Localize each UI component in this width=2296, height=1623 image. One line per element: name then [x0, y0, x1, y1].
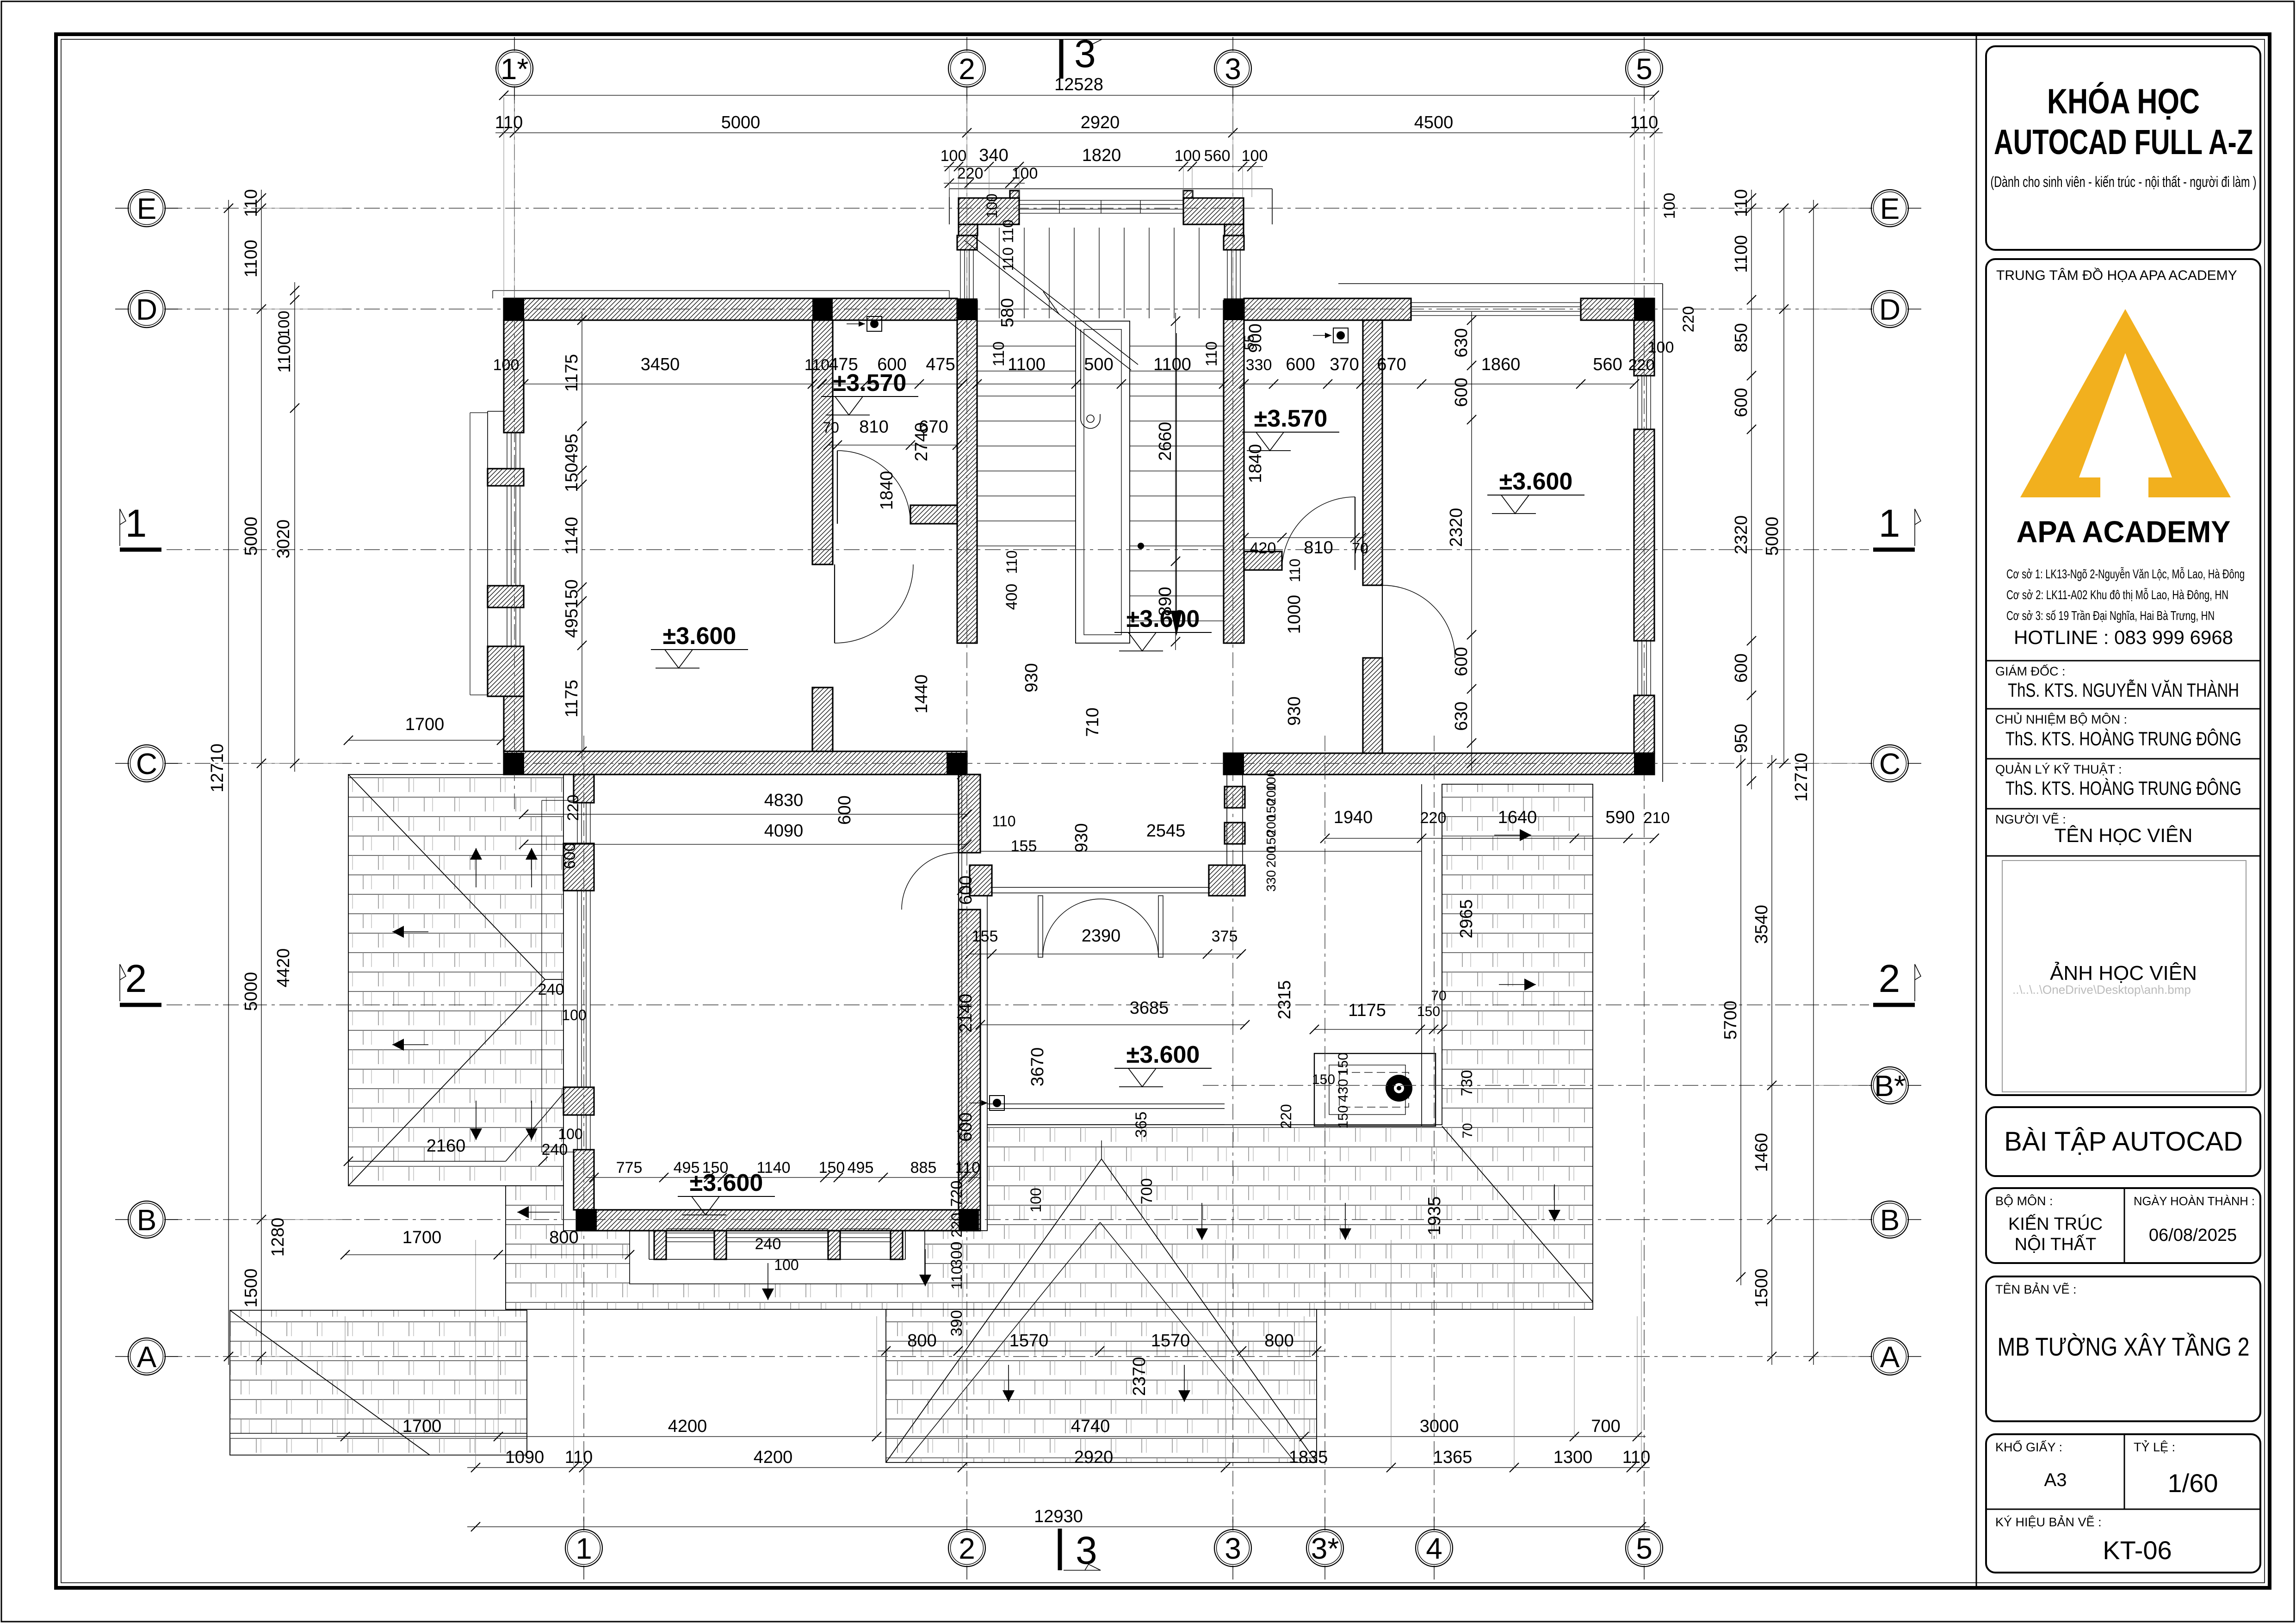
- svg-text:GIÁM ĐỐC :: GIÁM ĐỐC :: [1995, 663, 2066, 678]
- svg-text:110: 110: [1630, 113, 1659, 132]
- svg-text:810: 810: [859, 417, 888, 437]
- svg-text:1280: 1280: [268, 1218, 288, 1257]
- svg-text:600: 600: [1732, 653, 1751, 682]
- svg-text:150: 150: [562, 579, 582, 608]
- svg-text:4830: 4830: [764, 791, 804, 810]
- svg-text:390: 390: [948, 1310, 965, 1337]
- svg-text:2140: 2140: [956, 994, 976, 1033]
- svg-text:560: 560: [1204, 147, 1231, 165]
- svg-text:885: 885: [910, 1159, 937, 1177]
- svg-text:2370: 2370: [1130, 1357, 1149, 1396]
- svg-text:1940: 1940: [1334, 808, 1373, 827]
- svg-text:475: 475: [926, 355, 955, 374]
- svg-text:2: 2: [959, 52, 975, 86]
- svg-text:1100: 1100: [241, 240, 261, 278]
- svg-text:12930: 12930: [1034, 1507, 1083, 1526]
- svg-text:1090: 1090: [505, 1448, 545, 1467]
- svg-text:BỘ MÔN :: BỘ MÔN :: [1995, 1194, 2053, 1208]
- svg-text:800: 800: [907, 1331, 936, 1350]
- svg-text:1440: 1440: [912, 675, 931, 714]
- svg-text:B: B: [1880, 1203, 1900, 1237]
- svg-text:1175: 1175: [1348, 1001, 1386, 1020]
- svg-text:(Dành cho sinh viên - kiến tr: (Dành cho sinh viên - kiến trúc - nội th…: [1991, 173, 2257, 190]
- svg-text:1300: 1300: [1553, 1448, 1593, 1467]
- svg-text:D: D: [1879, 293, 1900, 326]
- svg-text:220: 220: [1420, 809, 1447, 827]
- svg-text:110: 110: [1000, 219, 1016, 243]
- svg-text:365: 365: [1133, 1112, 1150, 1138]
- svg-text:5000: 5000: [1763, 517, 1782, 556]
- svg-text:1100: 1100: [1153, 355, 1191, 374]
- svg-text:1*: 1*: [501, 52, 529, 86]
- svg-text:600: 600: [1452, 647, 1471, 676]
- svg-text:375: 375: [1212, 928, 1238, 945]
- svg-text:3*: 3*: [1311, 1532, 1339, 1565]
- svg-text:..\..\..\OneDrive\Desktop\anh.: ..\..\..\OneDrive\Desktop\anh.bmp: [2012, 983, 2191, 997]
- svg-text:KHÓA HỌC: KHÓA HỌC: [2047, 82, 2200, 121]
- svg-text:850: 850: [1732, 323, 1751, 352]
- svg-text:5000: 5000: [241, 517, 261, 556]
- svg-text:KT-06: KT-06: [2103, 1536, 2172, 1565]
- svg-text:1835: 1835: [1289, 1448, 1328, 1467]
- svg-text:4200: 4200: [754, 1448, 793, 1467]
- svg-text:700: 700: [1138, 1178, 1156, 1205]
- svg-text:300: 300: [948, 1242, 965, 1268]
- svg-text:100: 100: [1661, 193, 1678, 219]
- svg-text:B: B: [137, 1203, 157, 1237]
- svg-text:KHỔ GIẤY :: KHỔ GIẤY :: [1995, 1440, 2062, 1454]
- svg-text:ThS. KTS. HOÀNG TRUNG ĐÔNG: ThS. KTS. HOÀNG TRUNG ĐÔNG: [2005, 777, 2241, 799]
- svg-text:3000: 3000: [1420, 1417, 1459, 1436]
- svg-text:4090: 4090: [764, 821, 804, 841]
- svg-text:330: 330: [1246, 356, 1272, 374]
- svg-text:Cơ sở 1: LK13-Ngõ 2-Nguyễn Văn: Cơ sở 1: LK13-Ngõ 2-Nguyễn Văn Lộc, Mỗ L…: [2006, 567, 2245, 581]
- svg-text:2740: 2740: [912, 422, 931, 462]
- svg-text:420: 420: [1250, 539, 1276, 557]
- svg-text:110: 110: [1622, 1448, 1651, 1467]
- svg-text:930: 930: [1285, 696, 1304, 725]
- svg-text:100: 100: [774, 1257, 798, 1273]
- svg-text:800: 800: [1264, 1331, 1293, 1350]
- svg-text:495: 495: [848, 1159, 874, 1177]
- svg-text:D: D: [136, 293, 157, 326]
- svg-text:BÀI TẬP AUTOCAD: BÀI TẬP AUTOCAD: [2004, 1127, 2243, 1157]
- svg-text:2320: 2320: [1732, 515, 1751, 555]
- svg-text:70: 70: [823, 419, 839, 436]
- svg-text:4200: 4200: [668, 1417, 707, 1436]
- svg-text:150: 150: [819, 1159, 845, 1177]
- svg-text:240: 240: [542, 1141, 568, 1158]
- svg-text:2: 2: [1879, 957, 1900, 1000]
- svg-text:600: 600: [877, 355, 906, 374]
- svg-text:220: 220: [564, 795, 582, 821]
- svg-text:3: 3: [1225, 52, 1241, 86]
- svg-text:1860: 1860: [1481, 355, 1521, 374]
- svg-text:C: C: [1879, 747, 1900, 781]
- svg-text:TÊN BẢN VẼ :: TÊN BẢN VẼ :: [1995, 1282, 2077, 1296]
- svg-text:720: 720: [948, 1181, 965, 1207]
- svg-text:ThS. KTS. HOÀNG TRUNG ĐÔNG: ThS. KTS. HOÀNG TRUNG ĐÔNG: [2005, 728, 2241, 750]
- svg-text:5: 5: [1636, 52, 1652, 86]
- svg-text:110: 110: [805, 356, 829, 374]
- svg-text:12710: 12710: [208, 743, 227, 793]
- svg-text:3: 3: [1225, 1532, 1241, 1565]
- svg-text:495: 495: [562, 608, 582, 638]
- svg-text:150: 150: [1312, 1072, 1335, 1087]
- svg-text:100: 100: [1027, 1188, 1044, 1212]
- svg-text:1100: 1100: [1008, 355, 1046, 374]
- svg-text:2390: 2390: [1082, 926, 1121, 946]
- svg-text:1365: 1365: [1433, 1448, 1473, 1467]
- svg-text:110: 110: [1003, 550, 1020, 574]
- svg-text:2920: 2920: [1074, 1448, 1114, 1467]
- svg-text:150: 150: [1336, 1053, 1351, 1076]
- svg-text:150: 150: [1417, 1004, 1440, 1019]
- svg-text:200: 200: [1264, 846, 1278, 868]
- svg-text:110: 110: [955, 1159, 980, 1177]
- svg-text:1100: 1100: [1732, 235, 1751, 273]
- svg-text:1935: 1935: [1425, 1196, 1444, 1236]
- svg-text:150: 150: [1336, 1105, 1351, 1128]
- svg-text:100: 100: [493, 356, 520, 374]
- svg-text:240: 240: [538, 981, 564, 998]
- svg-text:1840: 1840: [877, 471, 897, 510]
- svg-text:1140: 1140: [562, 517, 582, 555]
- svg-text:12528: 12528: [1054, 75, 1103, 94]
- svg-text:TÊN HỌC VIÊN: TÊN HỌC VIÊN: [2055, 824, 2193, 846]
- svg-text:100: 100: [984, 193, 1000, 218]
- svg-text:110: 110: [1203, 341, 1220, 366]
- svg-text:3685: 3685: [1130, 998, 1169, 1018]
- svg-text:100: 100: [562, 1007, 586, 1023]
- svg-text:110: 110: [241, 189, 261, 217]
- svg-text:220: 220: [1680, 306, 1697, 333]
- svg-text:4740: 4740: [1071, 1417, 1110, 1436]
- svg-text:700: 700: [1591, 1417, 1620, 1436]
- svg-text:2660: 2660: [1156, 422, 1175, 461]
- svg-text:3020: 3020: [274, 520, 293, 559]
- svg-text:1640: 1640: [1498, 808, 1537, 827]
- svg-text:100: 100: [1648, 339, 1674, 356]
- svg-text:110: 110: [1732, 189, 1751, 217]
- svg-text:2320: 2320: [1447, 508, 1466, 547]
- svg-text:5000: 5000: [721, 113, 761, 132]
- svg-text:Cơ sở 3: số 19 Trần Đại Nghĩa,: Cơ sở 3: số 19 Trần Đại Nghĩa, Hai Bà Tr…: [2006, 608, 2215, 623]
- svg-text:100: 100: [558, 1126, 582, 1142]
- svg-text:100: 100: [275, 311, 293, 337]
- svg-text:2: 2: [125, 957, 147, 1000]
- svg-text:12710: 12710: [1792, 753, 1811, 802]
- svg-text:1840: 1840: [1246, 444, 1265, 483]
- svg-text:Cơ sở 2: LK11-A02 Khu đô thị M: Cơ sở 2: LK11-A02 Khu đô thị Mỗ Lao, Hà …: [2006, 588, 2228, 602]
- svg-text:1700: 1700: [402, 1417, 442, 1436]
- svg-text:930: 930: [1022, 663, 1041, 692]
- svg-text:NGÀY HOÀN THÀNH :: NGÀY HOÀN THÀNH :: [2134, 1194, 2255, 1208]
- svg-text:950: 950: [1732, 724, 1751, 753]
- svg-text:1: 1: [1879, 502, 1900, 545]
- svg-text:560: 560: [1593, 355, 1622, 374]
- svg-text:1570: 1570: [1151, 1331, 1190, 1350]
- svg-text:3: 3: [1076, 1529, 1097, 1572]
- svg-text:TỶ LỆ :: TỶ LỆ :: [2134, 1439, 2175, 1454]
- svg-text:HOTLINE : 083 999 6968: HOTLINE : 083 999 6968: [2014, 626, 2233, 648]
- svg-text:150: 150: [702, 1159, 729, 1177]
- svg-text:2160: 2160: [427, 1136, 466, 1156]
- svg-text:370: 370: [1330, 355, 1359, 374]
- svg-text:600: 600: [561, 843, 579, 869]
- svg-text:06/08/2025: 06/08/2025: [2149, 1226, 2237, 1245]
- svg-text:630: 630: [1452, 701, 1471, 731]
- svg-text:590: 590: [1605, 808, 1634, 827]
- svg-text:2920: 2920: [1081, 113, 1120, 132]
- svg-text:600: 600: [956, 1112, 976, 1141]
- svg-text:1175: 1175: [562, 680, 582, 718]
- svg-text:3540: 3540: [1752, 905, 1771, 944]
- svg-text:400: 400: [1003, 584, 1021, 610]
- svg-text:1: 1: [125, 502, 147, 545]
- svg-text:A: A: [137, 1340, 157, 1374]
- svg-text:1460: 1460: [1752, 1133, 1771, 1172]
- svg-text:600: 600: [835, 795, 854, 824]
- svg-text:155: 155: [972, 928, 998, 945]
- svg-text:MB TƯỜNG XÂY TẦNG 2: MB TƯỜNG XÂY TẦNG 2: [1998, 1332, 2250, 1361]
- svg-text:4500: 4500: [1414, 113, 1454, 132]
- svg-text:4: 4: [1426, 1532, 1442, 1565]
- svg-text:±3.600: ±3.600: [663, 623, 736, 650]
- svg-text:110: 110: [1287, 558, 1303, 582]
- svg-text:475: 475: [829, 355, 858, 374]
- svg-text:155: 155: [1011, 837, 1037, 855]
- svg-text:5700: 5700: [1721, 1001, 1740, 1040]
- svg-text:430: 430: [1336, 1079, 1351, 1102]
- svg-text:APA ACADEMY: APA ACADEMY: [2017, 514, 2231, 549]
- svg-text:220: 220: [1278, 1104, 1294, 1128]
- svg-text:110: 110: [990, 341, 1008, 366]
- svg-text:900: 900: [1246, 323, 1265, 353]
- svg-text:B*: B*: [1874, 1069, 1906, 1103]
- svg-text:AUTOCAD FULL A-Z: AUTOCAD FULL A-Z: [1994, 123, 2253, 162]
- svg-text:CHỦ NHIỆM BỘ MÔN :: CHỦ NHIỆM BỘ MÔN :: [1995, 712, 2127, 726]
- svg-text:710: 710: [1083, 707, 1102, 737]
- svg-text:2315: 2315: [1275, 980, 1294, 1020]
- svg-text:600: 600: [1732, 388, 1751, 417]
- svg-text:110: 110: [992, 813, 1015, 830]
- svg-text:775: 775: [616, 1159, 643, 1177]
- svg-text:240: 240: [755, 1235, 781, 1253]
- svg-text:330: 330: [1264, 870, 1278, 892]
- svg-text:100: 100: [1242, 147, 1268, 165]
- svg-text:1820: 1820: [1082, 146, 1121, 165]
- svg-text:930: 930: [1072, 823, 1091, 852]
- svg-text:70: 70: [1352, 540, 1368, 557]
- svg-text:5000: 5000: [241, 972, 261, 1011]
- svg-text:110: 110: [948, 1266, 965, 1289]
- svg-text:1000: 1000: [1285, 595, 1304, 634]
- svg-text:QUẢN LÝ KỸ THUẬT :: QUẢN LÝ KỸ THUẬT :: [1995, 762, 2122, 776]
- svg-text:1700: 1700: [405, 715, 445, 734]
- svg-text:220: 220: [948, 1213, 965, 1237]
- svg-text:2545: 2545: [1146, 821, 1186, 841]
- svg-text:580: 580: [998, 298, 1017, 327]
- svg-text:110: 110: [565, 1448, 593, 1467]
- svg-text:1140: 1140: [756, 1159, 790, 1177]
- svg-text:3670: 3670: [1028, 1047, 1047, 1087]
- svg-text:600: 600: [956, 875, 976, 904]
- svg-text:1100: 1100: [275, 335, 294, 373]
- svg-text:1700: 1700: [402, 1228, 442, 1247]
- svg-text:730: 730: [1458, 1070, 1476, 1096]
- svg-text:600: 600: [1286, 355, 1315, 374]
- svg-text:1: 1: [576, 1532, 592, 1565]
- svg-text:ThS. KTS. NGUYỄN VĂN THÀNH: ThS. KTS. NGUYỄN VĂN THÀNH: [2008, 679, 2239, 701]
- svg-text:TRUNG TÂM ĐỒ HỌA APA ACADEMY: TRUNG TÂM ĐỒ HỌA APA ACADEMY: [1996, 267, 2237, 283]
- svg-text:500: 500: [1084, 355, 1113, 374]
- svg-text:495: 495: [562, 434, 582, 463]
- svg-text:70: 70: [1460, 1123, 1475, 1138]
- svg-text:1/60: 1/60: [2168, 1468, 2218, 1498]
- svg-text:2: 2: [959, 1532, 975, 1565]
- svg-text:810: 810: [1304, 538, 1333, 558]
- svg-text:A: A: [1880, 1340, 1900, 1374]
- svg-text:220: 220: [1628, 356, 1655, 374]
- svg-text:70: 70: [1431, 988, 1446, 1004]
- svg-text:4420: 4420: [274, 948, 293, 988]
- svg-text:±3.570: ±3.570: [1254, 405, 1328, 432]
- svg-text:5: 5: [1636, 1532, 1652, 1565]
- svg-text:E: E: [137, 192, 157, 225]
- svg-text:±3.600: ±3.600: [1126, 1041, 1200, 1068]
- svg-text:495: 495: [674, 1159, 700, 1177]
- svg-text:890: 890: [1156, 587, 1175, 616]
- svg-text:800: 800: [549, 1228, 578, 1247]
- svg-text:3: 3: [1074, 32, 1096, 75]
- svg-text:ẢNH HỌC VIÊN: ẢNH HỌC VIÊN: [2050, 961, 2197, 985]
- svg-text:KIẾN TRÚC: KIẾN TRÚC: [2008, 1214, 2103, 1234]
- svg-text:A3: A3: [2044, 1470, 2067, 1490]
- svg-text:110: 110: [1000, 247, 1016, 271]
- svg-text:±3.600: ±3.600: [1499, 468, 1573, 495]
- svg-text:100: 100: [1175, 147, 1201, 165]
- svg-text:210: 210: [1644, 809, 1670, 827]
- svg-text:2965: 2965: [1457, 899, 1476, 939]
- svg-text:670: 670: [1377, 355, 1406, 374]
- svg-text:1570: 1570: [1009, 1331, 1049, 1350]
- svg-text:C: C: [136, 747, 157, 781]
- svg-text:630: 630: [1452, 328, 1471, 357]
- svg-text:1500: 1500: [241, 1269, 261, 1308]
- svg-text:220: 220: [957, 165, 984, 182]
- svg-text:340: 340: [979, 146, 1008, 165]
- svg-text:E: E: [1880, 192, 1900, 225]
- svg-text:KÝ HIỆU BẢN VẼ :: KÝ HIỆU BẢN VẼ :: [1995, 1514, 2102, 1529]
- svg-text:1175: 1175: [562, 354, 582, 392]
- svg-text:100: 100: [941, 147, 967, 165]
- svg-text:100: 100: [1012, 165, 1038, 182]
- svg-text:110: 110: [495, 113, 523, 132]
- svg-text:3450: 3450: [641, 355, 680, 374]
- svg-text:150: 150: [562, 463, 582, 492]
- svg-text:1500: 1500: [1752, 1269, 1771, 1308]
- svg-text:600: 600: [1452, 378, 1471, 407]
- svg-text:NỘI THẤT: NỘI THẤT: [2015, 1234, 2097, 1254]
